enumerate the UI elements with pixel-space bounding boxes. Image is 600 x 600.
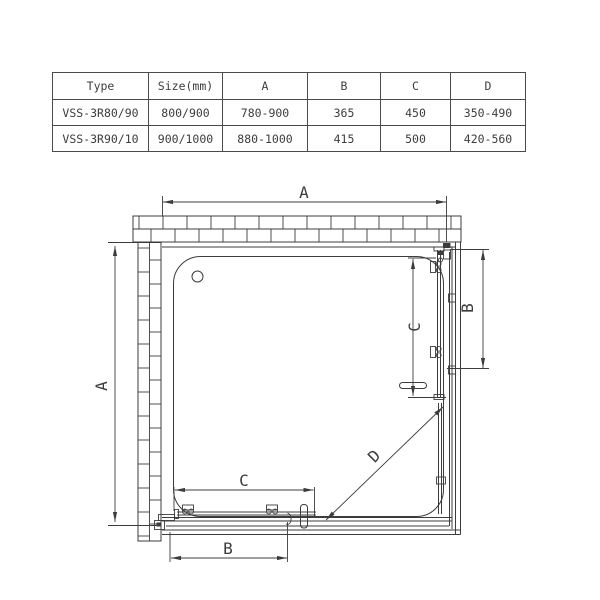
dim-b-right: B [447,250,489,369]
door-roller-icon [431,346,442,357]
dim-label-d: D [364,446,384,466]
dim-b-bottom: B [170,522,288,562]
door-roller-icon [431,261,442,272]
door-roller-icon [182,505,193,514]
shower-tray [174,257,444,517]
dim-label-b-bottom: B [223,539,233,558]
dim-c-bottom: C [174,471,315,517]
dim-label-c-bottom: C [239,471,249,490]
door-roller-icon [266,505,277,514]
technical-drawing: A A B C C [0,0,600,600]
brick-wall-top [133,216,461,242]
brick-wall-left [138,242,161,541]
dim-label-b-right: B [458,303,477,313]
dim-label-c-right: C [405,322,424,332]
dim-label-a-top: A [299,183,309,202]
dim-label-a-left: A [92,381,111,391]
right-sliding-door [400,243,456,514]
drain-icon [192,271,203,282]
spec-sheet-page: Type Size(mm) A B C D VSS-3R80/90 800/90… [0,0,600,600]
top-pivot-bracket [438,243,451,262]
dim-d-diagonal: D [326,407,443,520]
dim-c-right: C [405,258,446,398]
